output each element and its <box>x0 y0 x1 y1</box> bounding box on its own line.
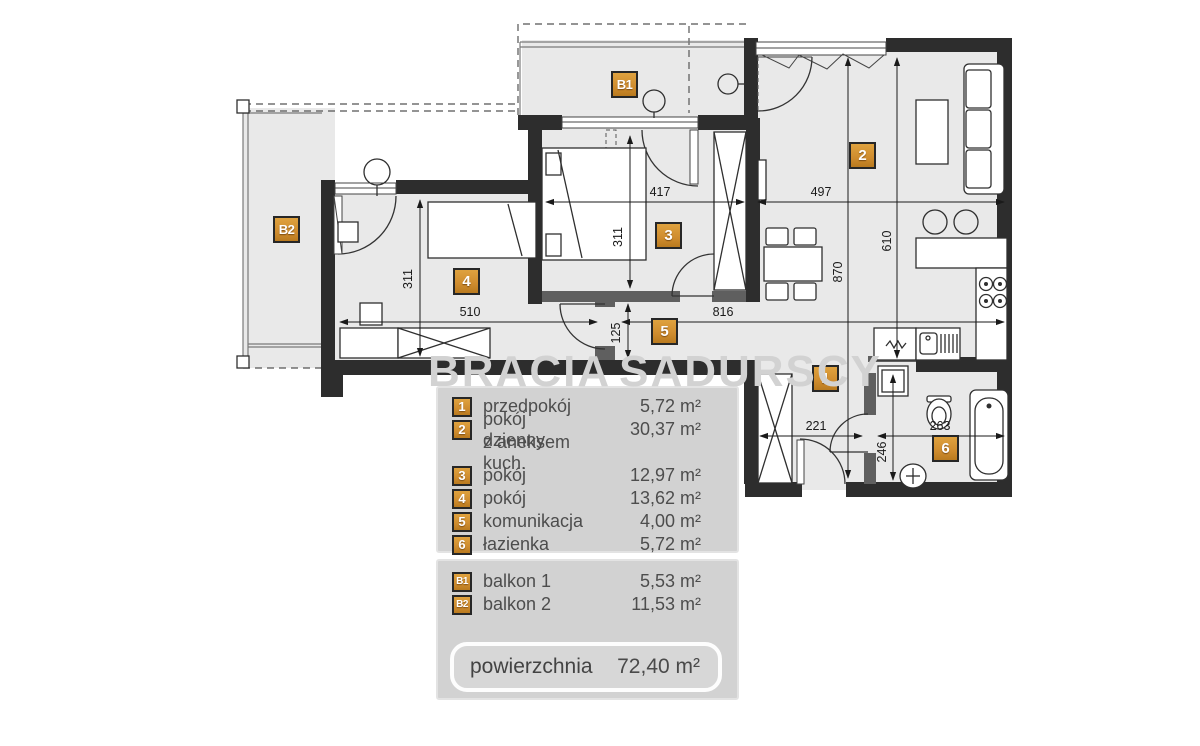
legend-row-balkon-2: B2 balkon 2 11,53 m² <box>452 593 737 616</box>
room-badge-4: 4 <box>453 268 480 295</box>
legend-row-balkon-1: B1 balkon 1 5,53 m² <box>452 570 737 593</box>
legend-row-room-5: 5 komunikacja 4,00 m² <box>452 510 737 533</box>
legend-room-area: 13,62 m² <box>591 488 737 509</box>
legend-badge-b1: B1 <box>452 572 472 592</box>
legend-room-area: 5,72 m² <box>591 396 737 417</box>
legend-balcony-area: 5,53 m² <box>591 571 737 592</box>
legend-badge-2: 2 <box>452 420 472 440</box>
room-badge-b2: B2 <box>273 216 300 243</box>
dim-497: 497 <box>811 185 832 199</box>
dim-125: 125 <box>609 323 623 344</box>
radiator <box>758 160 766 200</box>
legend-room-name: łazienka <box>483 534 591 555</box>
desk-room4 <box>340 328 490 358</box>
legend-panel-rooms: 1 przedpokój 5,72 m² 2 pokój dzienny 30,… <box>436 386 739 553</box>
legend-badge-spacer <box>452 443 472 463</box>
dim-610: 610 <box>880 231 894 252</box>
legend-badge-1: 1 <box>452 397 472 417</box>
legend-room-area: 30,37 m² <box>591 419 737 440</box>
wardrobe-hall <box>758 374 792 483</box>
sofa <box>964 64 1004 194</box>
total-area-label: powierzchnia <box>470 655 593 679</box>
legend-room-area: 12,97 m² <box>591 465 737 486</box>
legend-row-room-3: 3 pokój 12,97 m² <box>452 464 737 487</box>
legend-balcony-name: balkon 1 <box>483 571 591 592</box>
room-badge-b1: B1 <box>611 71 638 98</box>
legend-row-room-6: 6 łazienka 5,72 m² <box>452 533 737 556</box>
legend-badge-3: 3 <box>452 466 472 486</box>
room-badge-2: 2 <box>849 142 876 169</box>
legend-room-area: 4,00 m² <box>591 511 737 532</box>
dim-221: 221 <box>806 419 827 433</box>
legend-room-area: 5,72 m² <box>591 534 737 555</box>
legend-badge-5: 5 <box>452 512 472 532</box>
dim-311-room3: 311 <box>611 227 625 247</box>
room-badge-1: 1 <box>812 365 839 392</box>
total-area-box: powierzchnia 72,40 m² <box>450 642 722 692</box>
legend-balcony-name: balkon 2 <box>483 594 591 615</box>
legend-row-room-2-cont: z aneksem kuch. <box>452 441 737 464</box>
room-badge-6: 6 <box>932 435 959 462</box>
legend-room-name: komunikacja <box>483 511 591 532</box>
room-badge-5: 5 <box>651 318 678 345</box>
total-area-value: 72,40 m² <box>617 655 700 679</box>
dim-311-room4: 311 <box>401 269 415 289</box>
legend-room-name: pokój <box>483 465 591 486</box>
wardrobe-room3 <box>714 132 746 290</box>
legend-row-room-4: 4 pokój 13,62 m² <box>452 487 737 510</box>
dim-870: 870 <box>831 262 845 283</box>
room-badge-3: 3 <box>655 222 682 249</box>
legend-badge-4: 4 <box>452 489 472 509</box>
dim-263: 263 <box>930 419 951 433</box>
dim-246: 246 <box>875 442 889 463</box>
coffee-table <box>916 100 948 164</box>
dim-510: 510 <box>460 305 481 319</box>
dim-816: 816 <box>713 305 734 319</box>
dim-417: 417 <box>650 185 671 199</box>
legend-balcony-area: 11,53 m² <box>591 594 737 615</box>
legend-room-name: pokój <box>483 488 591 509</box>
legend-badge-b2: B2 <box>452 595 472 615</box>
floor-plan-page: 417 497 311 311 870 610 510 816 125 221 … <box>0 0 1200 746</box>
legend-badge-6: 6 <box>452 535 472 555</box>
